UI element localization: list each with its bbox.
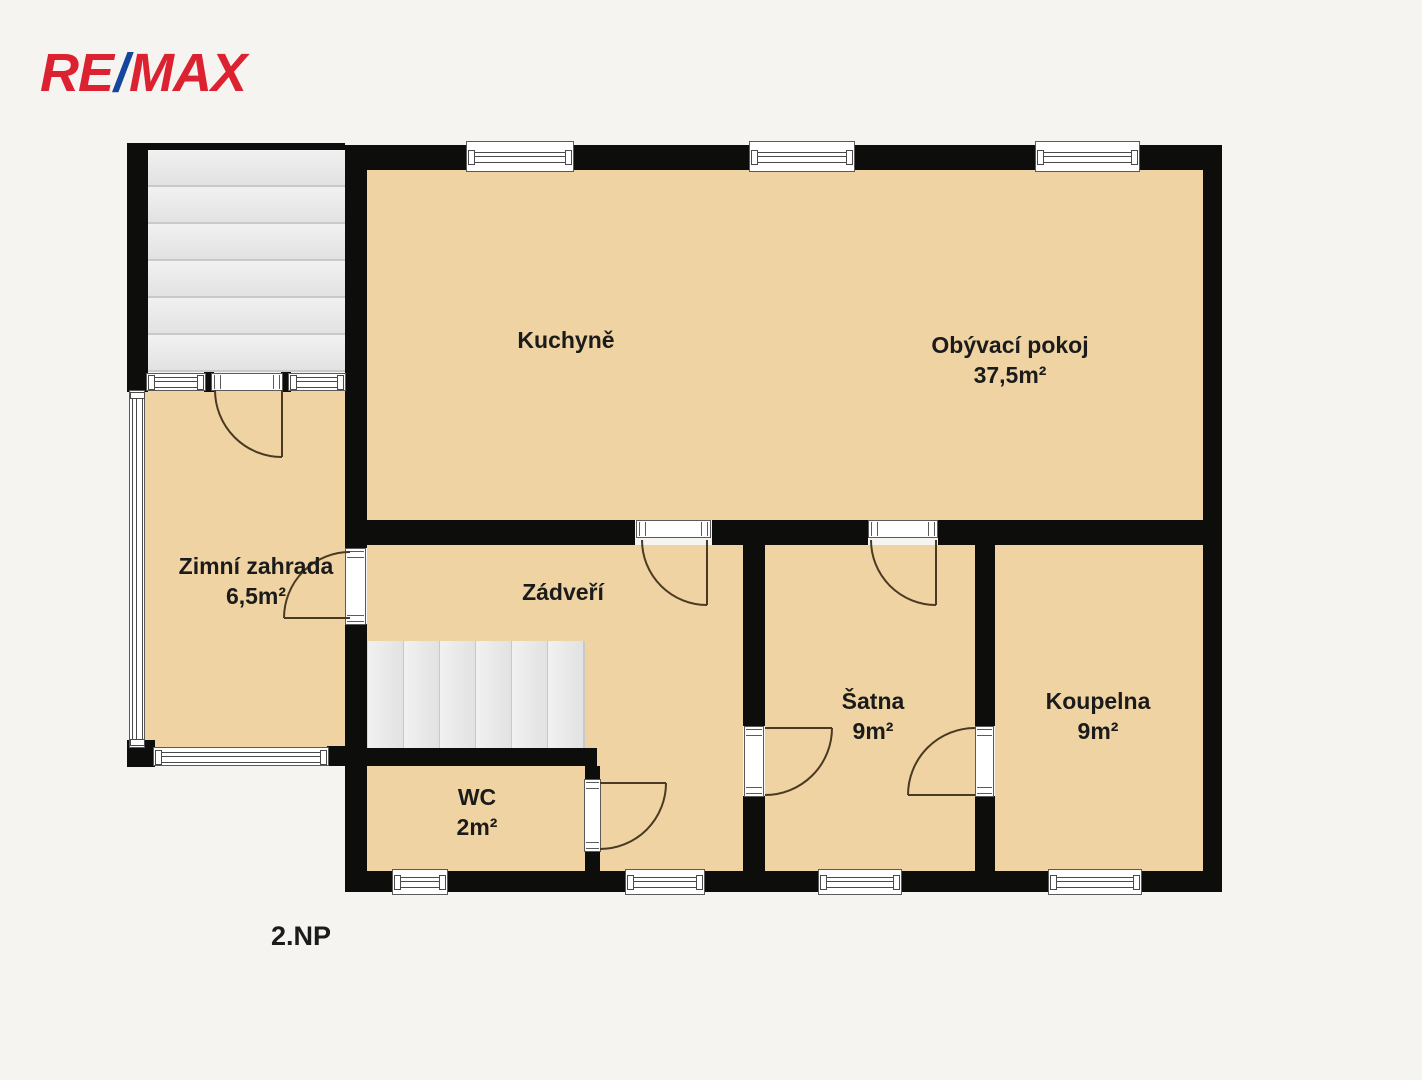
winter-garden-glazing-top-right [288, 373, 346, 391]
window-pane [295, 377, 339, 388]
window-pane [1055, 877, 1135, 888]
room-label-zimni-zahrada: Zimní zahrada6,5m² [179, 552, 334, 612]
remax-logo: RE/MAX [40, 46, 246, 100]
door-frame-winter-garden-hall [345, 548, 366, 625]
door-frame-winter-garden-top [211, 373, 283, 391]
window-symbol [392, 869, 448, 895]
window-pane [1042, 152, 1133, 163]
window-symbol [466, 141, 574, 172]
room-name: Šatna [842, 687, 905, 717]
stair-tread [148, 224, 345, 261]
window-pane [825, 877, 895, 888]
winter-garden-glazing-top-left [146, 373, 206, 391]
room-name: Zimní zahrada [179, 552, 334, 582]
wall-right [1203, 145, 1222, 892]
door-frame-kitchen-hall [636, 520, 711, 538]
wall-interior-h3 [938, 520, 1203, 545]
wall-stairs-left [127, 143, 148, 392]
stair-tread [148, 298, 345, 335]
stair-tread [476, 641, 513, 748]
stair-tread [512, 641, 549, 748]
door-frame-hall-satna [744, 726, 764, 797]
room-area: 6,5m² [179, 582, 334, 612]
wall-wc-right-lower [585, 851, 600, 871]
window-pane [160, 752, 322, 763]
window-symbol [625, 869, 705, 895]
door-frame-living-satna [868, 520, 938, 538]
stair-tread [148, 187, 345, 224]
room-area: 9m² [842, 717, 905, 747]
window-pane [473, 152, 567, 163]
room-label-koupelna: Koupelna9m² [1046, 687, 1151, 747]
room-name: Zádveří [522, 578, 604, 608]
logo-re: RE [40, 43, 113, 103]
wall-interior-h1 [345, 520, 635, 545]
staircase-hallway [368, 641, 585, 748]
stair-tread [148, 335, 345, 372]
stair-tread [148, 150, 345, 187]
room-label-wc: WC2m² [457, 783, 498, 843]
stair-tread [440, 641, 477, 748]
staircase-upper [148, 150, 345, 372]
stair-tread [404, 641, 441, 748]
wall-left-upper [345, 145, 367, 548]
wall-hall-satna-upper [743, 545, 765, 726]
window-pane [132, 397, 143, 741]
wall-wc-right-upper [585, 766, 600, 779]
window-symbol [818, 869, 902, 895]
stair-tread [368, 641, 405, 748]
logo-max: MAX [129, 43, 246, 103]
room-area: 37,5m² [931, 361, 1088, 391]
room-name: WC [457, 783, 498, 813]
window-pane [632, 877, 698, 888]
wall-stairs-top [127, 143, 345, 150]
wall-wg-post-c [327, 746, 363, 766]
window-pane [399, 877, 441, 888]
stair-tread [148, 261, 345, 298]
stair-tread [548, 641, 585, 748]
window-symbol [1035, 141, 1140, 172]
window-pane [153, 377, 199, 388]
winter-garden-glazing-bottom [153, 747, 329, 766]
winter-garden-glazing-left [129, 390, 145, 748]
window-pane [756, 152, 848, 163]
room-label-satna: Šatna9m² [842, 687, 905, 747]
room-label-zadveri: Zádveří [522, 578, 604, 608]
room-name: Kuchyně [517, 326, 614, 356]
room-area: 9m² [1046, 717, 1151, 747]
wall-satna-koupelna-upper [975, 545, 995, 726]
floor-plan: RE/MAX [0, 0, 1422, 1080]
wall-interior-h2 [712, 520, 868, 545]
wall-stairs-bottom [345, 748, 597, 766]
floor-number-label: 2.NP [271, 921, 331, 952]
room-label-kuchyne: Kuchyně [517, 326, 614, 356]
window-symbol [1048, 869, 1142, 895]
room-label-obyvaci-pokoj: Obývací pokoj37,5m² [931, 331, 1088, 391]
door-frame-wc [584, 779, 601, 852]
logo-slash: / [113, 43, 129, 103]
room-name: Koupelna [1046, 687, 1151, 717]
wall-hall-satna-lower [743, 796, 765, 871]
door-frame-satna-koupelna [975, 726, 994, 797]
wall-satna-koupelna-lower [975, 796, 995, 871]
room-area: 2m² [457, 813, 498, 843]
window-symbol [749, 141, 855, 172]
room-name: Obývací pokoj [931, 331, 1088, 361]
